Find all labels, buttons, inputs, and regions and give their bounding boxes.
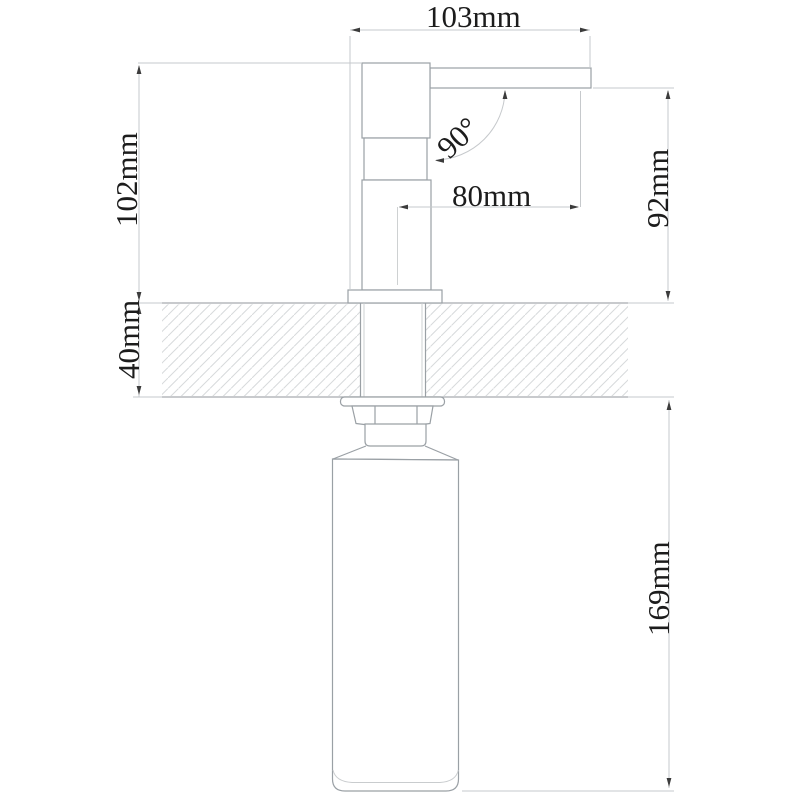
countertop-section: [162, 303, 628, 397]
soap-dispenser-drawing: 103mm 102mm 40mm 92mm 169mm: [0, 0, 800, 800]
dispenser-lower-assembly: [333, 397, 459, 791]
pump-neck: [364, 138, 427, 180]
label-90deg: 90°: [430, 110, 486, 165]
dimension-92mm: 92mm: [593, 88, 675, 303]
bottle: [333, 459, 459, 791]
label-169mm: 169mm: [641, 541, 676, 636]
label-40mm: 40mm: [111, 300, 146, 379]
dimension-40mm: 40mm: [111, 300, 162, 397]
technical-drawing-page: 103mm 102mm 40mm 92mm 169mm: [0, 0, 800, 800]
angle-90deg: 90°: [430, 90, 507, 165]
dimension-169mm: 169mm: [462, 397, 676, 791]
countertop-hatch-left: [162, 304, 360, 396]
label-103mm: 103mm: [426, 0, 521, 34]
label-92mm: 92mm: [640, 149, 675, 228]
label-80mm: 80mm: [452, 178, 531, 213]
bottle-collar: [365, 424, 426, 446]
bottle-shoulder: [333, 446, 458, 460]
spout-bar: [430, 68, 591, 88]
countertop-hatch-right: [426, 304, 628, 396]
pump-body: [362, 180, 431, 290]
washer: [341, 397, 445, 406]
dimension-102mm: 102mm: [109, 63, 362, 303]
threaded-shank: [361, 303, 426, 397]
label-102mm: 102mm: [109, 132, 144, 227]
mounting-nut: [352, 406, 433, 426]
pump-head: [362, 63, 430, 138]
base-flange: [348, 290, 442, 303]
